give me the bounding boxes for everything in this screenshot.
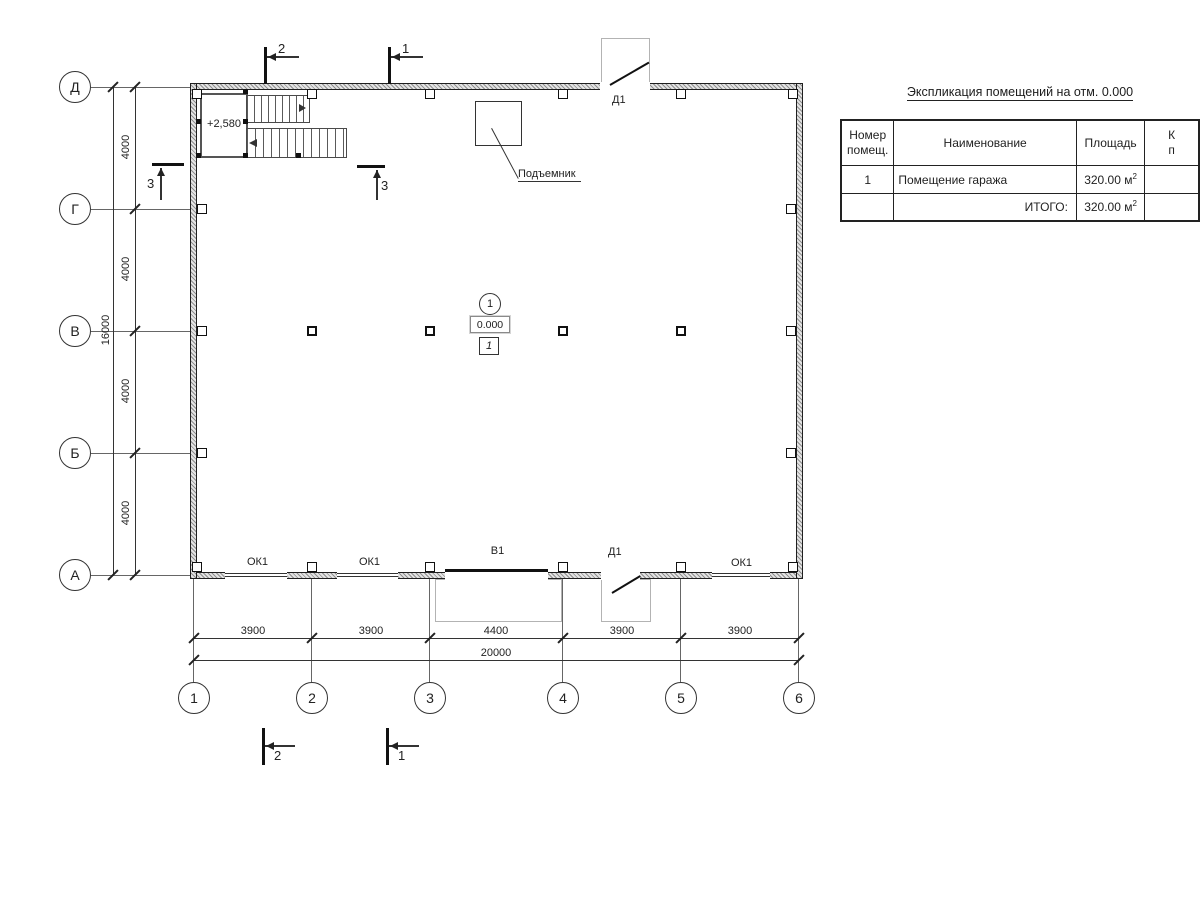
section-arrow-icon: [266, 742, 274, 750]
axis-ext-row: [91, 87, 190, 88]
table-total-row: ИТОГО: 320.00 м2: [841, 194, 1199, 222]
axis-ext-col: [193, 579, 194, 682]
dim-value: 3900: [341, 625, 401, 637]
cell-room-area: 320.00 м2: [1076, 166, 1144, 194]
cell-cut: [1145, 194, 1199, 222]
stair-elevation-label: +2,580: [201, 118, 247, 130]
gate-leaf: [445, 569, 548, 572]
cell-room-name: Помещение гаража: [894, 166, 1077, 194]
wall-right: [796, 83, 803, 579]
column-marker: [558, 89, 568, 99]
column-marker: [307, 89, 317, 99]
floor-plan-canvas: ОК1 ОК1 ОК1 В1 Д1 Д1 +2,580 Подъемник 1 …: [0, 0, 1200, 900]
dim-value: 4000: [120, 247, 132, 291]
section-mark-bar: [264, 47, 267, 84]
section-label: 1: [402, 41, 409, 56]
axis-ext-col: [562, 579, 563, 682]
column-marker: [197, 448, 207, 458]
stair-junction-square: [196, 119, 201, 124]
column-marker: [676, 89, 686, 99]
section-mark-bar: [357, 165, 385, 168]
window-1-label: ОК1: [230, 556, 285, 568]
cell-cut: [1145, 166, 1199, 194]
header-cut-column: К п: [1145, 120, 1199, 166]
stair-up-arrow-icon: [299, 104, 306, 112]
stair-junction-square: [196, 153, 201, 158]
dim-value: 4000: [120, 125, 132, 169]
column-marker: [425, 562, 435, 572]
dim-value: 3900: [710, 625, 770, 637]
dim-value: 3900: [223, 625, 283, 637]
explication-table: Номер помещ. Наименование Площадь К п 1 …: [840, 119, 1200, 222]
stair-junction-square: [296, 153, 301, 158]
axis-row-circle: Б: [59, 437, 91, 469]
interior-column: [425, 326, 435, 336]
column-marker: [788, 562, 798, 572]
room-elevation-box: 0.000: [470, 316, 510, 333]
axis-row-circle: В: [59, 315, 91, 347]
table-header-row: Номер помещ. Наименование Площадь К п: [841, 120, 1199, 166]
dim-value: 4000: [120, 369, 132, 413]
axis-ext-row: [91, 575, 190, 576]
table-row: 1 Помещение гаража 320.00 м2: [841, 166, 1199, 194]
gate-apron: [435, 579, 562, 622]
header-cut-line2: п: [1149, 143, 1194, 158]
column-marker: [192, 562, 202, 572]
cell-room-number: 1: [841, 166, 894, 194]
header-cut-line1: К: [1149, 128, 1194, 143]
cell-total-label: ИТОГО:: [894, 194, 1077, 222]
section-arrow-icon: [157, 168, 165, 176]
cell-empty: [841, 194, 894, 222]
area-value: 320.00 м: [1084, 173, 1132, 187]
explication-title: Экспликация помещений на отм. 0.000: [845, 85, 1195, 99]
window-2-icon: [337, 573, 398, 577]
header-area: Площадь: [1076, 120, 1144, 166]
explication-title-text: Экспликация помещений на отм. 0.000: [907, 85, 1133, 101]
section-label: 3: [147, 176, 154, 191]
dim-total: 20000: [466, 647, 526, 659]
axis-ext-col: [311, 579, 312, 682]
header-name: Наименование: [894, 120, 1077, 166]
column-marker: [197, 326, 207, 336]
door-top-opening: [600, 82, 650, 91]
column-marker: [786, 326, 796, 336]
column-marker: [192, 89, 202, 99]
axis-col-circle: 1: [178, 682, 210, 714]
window-2-label: ОК1: [342, 556, 397, 568]
section-label: 2: [278, 41, 285, 56]
axis-ext-col: [680, 579, 681, 682]
axis-col-circle: 4: [547, 682, 579, 714]
door-top-label: Д1: [612, 94, 626, 106]
cell-total-area: 320.00 м2: [1076, 194, 1144, 222]
column-marker: [558, 562, 568, 572]
dim-line-bottom-segments: [194, 638, 799, 639]
stair-junction-square: [243, 153, 248, 158]
stair-junction-square: [243, 119, 248, 124]
axis-col-circle: 6: [783, 682, 815, 714]
dim-value: 4000: [120, 491, 132, 535]
axis-ext-col: [429, 579, 430, 682]
dim-line-bottom-total: [194, 660, 799, 661]
column-marker: [786, 204, 796, 214]
section-mark-bar: [388, 47, 391, 84]
gate-opening: [445, 571, 548, 580]
section-label: 2: [274, 748, 281, 763]
hoist-label: Подъемник: [518, 168, 576, 180]
area-sup: 2: [1132, 199, 1136, 208]
stair-down-arrow-icon: [249, 139, 257, 147]
section-mark-bar: [386, 728, 389, 765]
door-bottom-label: Д1: [608, 546, 622, 558]
hoist-label-underline: [518, 181, 581, 182]
dim-value: 4400: [466, 625, 526, 637]
section-label: 3: [381, 178, 388, 193]
room-number-circle: 1: [479, 293, 501, 315]
interior-column: [558, 326, 568, 336]
axis-row-circle: Д: [59, 71, 91, 103]
header-room-number: Номер помещ.: [841, 120, 894, 166]
dim-line-left-total: [113, 87, 114, 575]
axis-ext-row: [91, 209, 190, 210]
section-arrow-icon: [392, 53, 400, 61]
dim-value: 3900: [592, 625, 652, 637]
column-marker: [307, 562, 317, 572]
area-value: 320.00 м: [1084, 200, 1132, 214]
section-arrow-icon: [268, 53, 276, 61]
section-arrow-icon: [390, 742, 398, 750]
wall-top: [190, 83, 803, 90]
column-marker: [425, 89, 435, 99]
axis-ext-col: [798, 579, 799, 682]
interior-column: [307, 326, 317, 336]
section-label: 1: [398, 748, 405, 763]
room-floor-type-box: 1: [479, 337, 499, 355]
axis-col-circle: 5: [665, 682, 697, 714]
axis-row-circle: Г: [59, 193, 91, 225]
axis-col-circle: 2: [296, 682, 328, 714]
section-mark-bar: [262, 728, 265, 765]
column-marker: [197, 204, 207, 214]
section-arrow-icon: [373, 170, 381, 178]
stair-junction-square: [243, 89, 248, 94]
section-mark-bar: [152, 163, 184, 166]
interior-column: [676, 326, 686, 336]
window-1-icon: [225, 573, 287, 577]
axis-col-circle: 3: [414, 682, 446, 714]
window-3-icon: [712, 573, 770, 577]
area-sup: 2: [1132, 172, 1136, 181]
column-marker: [788, 89, 798, 99]
dim-total: 16000: [100, 305, 112, 355]
gate-label: В1: [475, 545, 520, 557]
column-marker: [786, 448, 796, 458]
axis-row-circle: А: [59, 559, 91, 591]
column-marker: [676, 562, 686, 572]
window-3-label: ОК1: [714, 557, 769, 569]
axis-ext-row: [91, 453, 190, 454]
